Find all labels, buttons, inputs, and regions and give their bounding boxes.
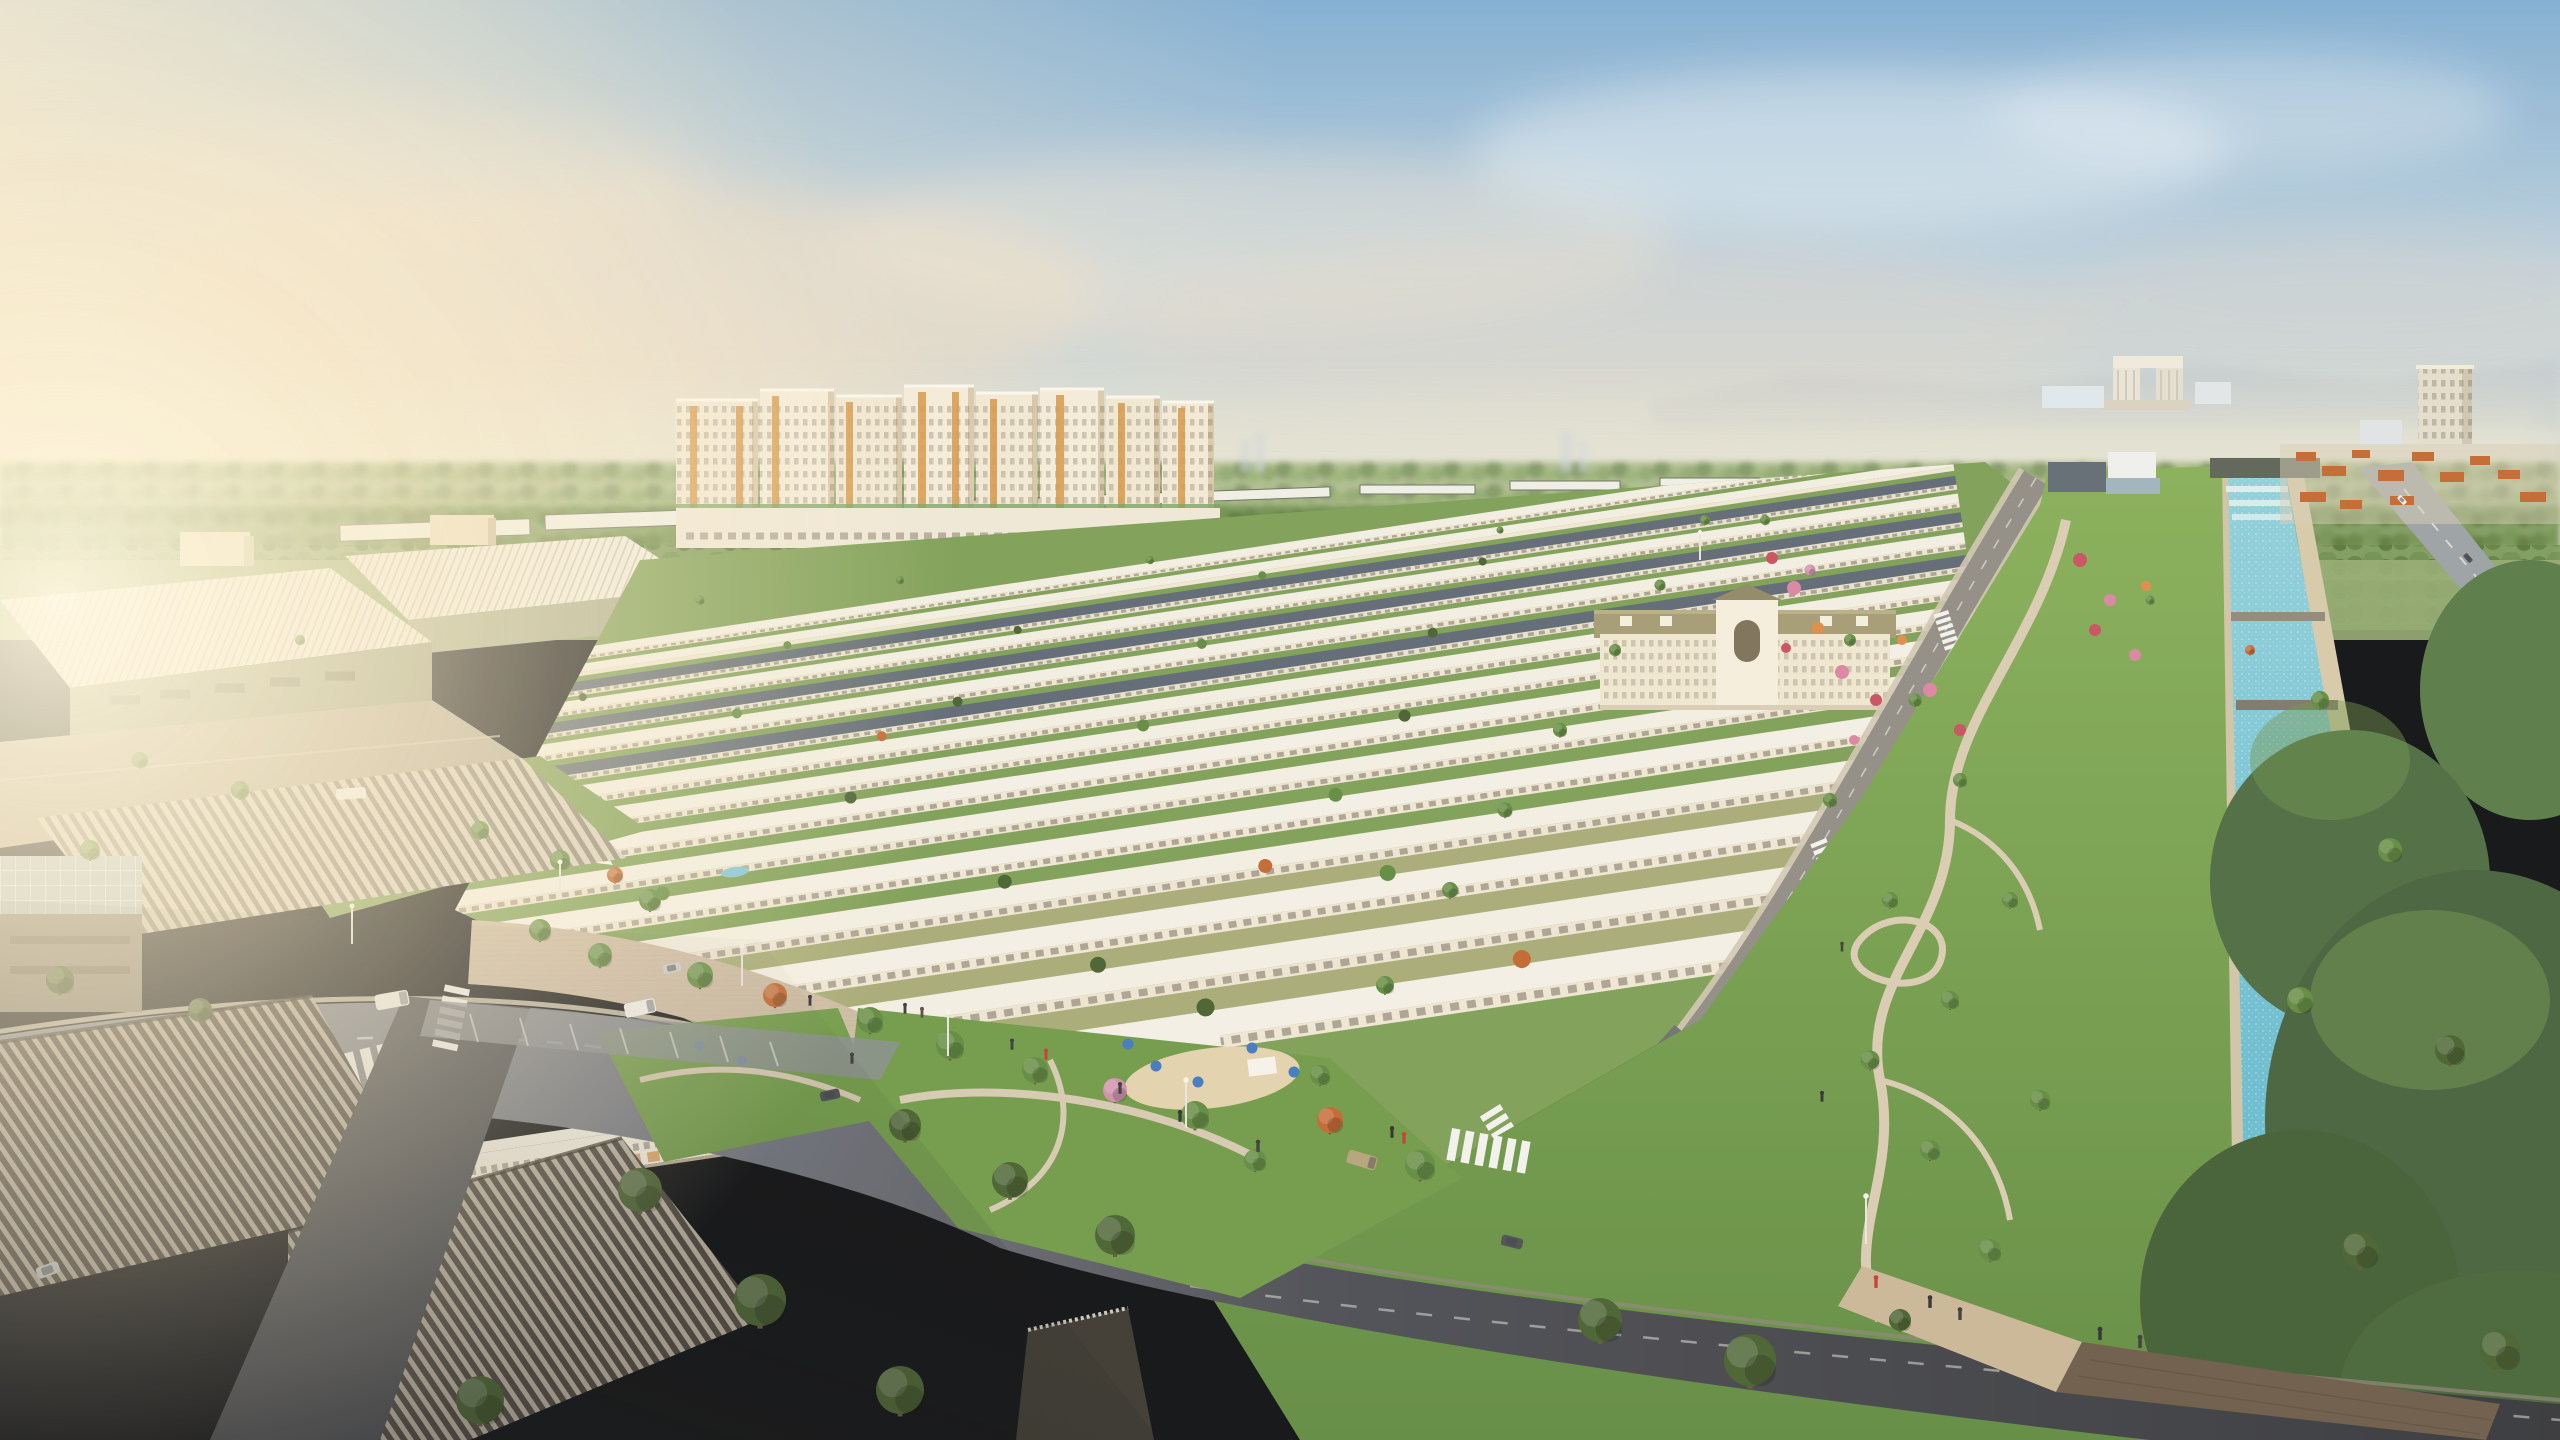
warm-tint bbox=[0, 0, 2560, 1440]
scene-canvas bbox=[0, 0, 2560, 1440]
aerial-render-image bbox=[0, 0, 2560, 1440]
